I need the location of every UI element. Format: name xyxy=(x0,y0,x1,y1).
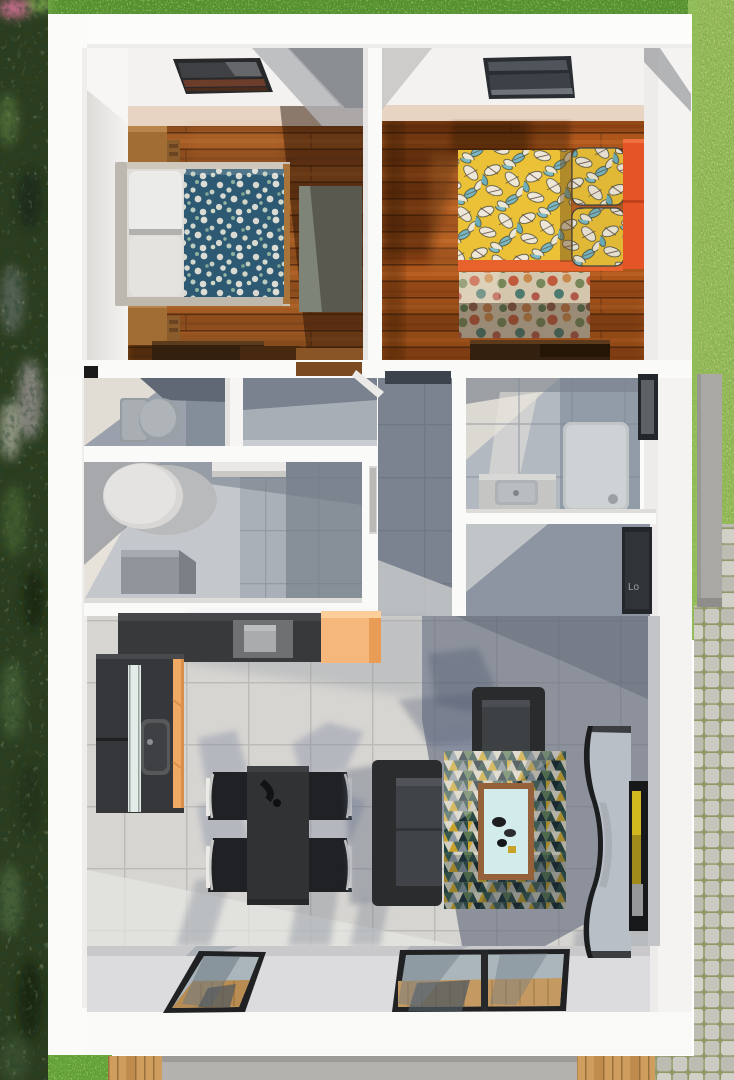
svg-text:Lo: Lo xyxy=(628,582,640,593)
